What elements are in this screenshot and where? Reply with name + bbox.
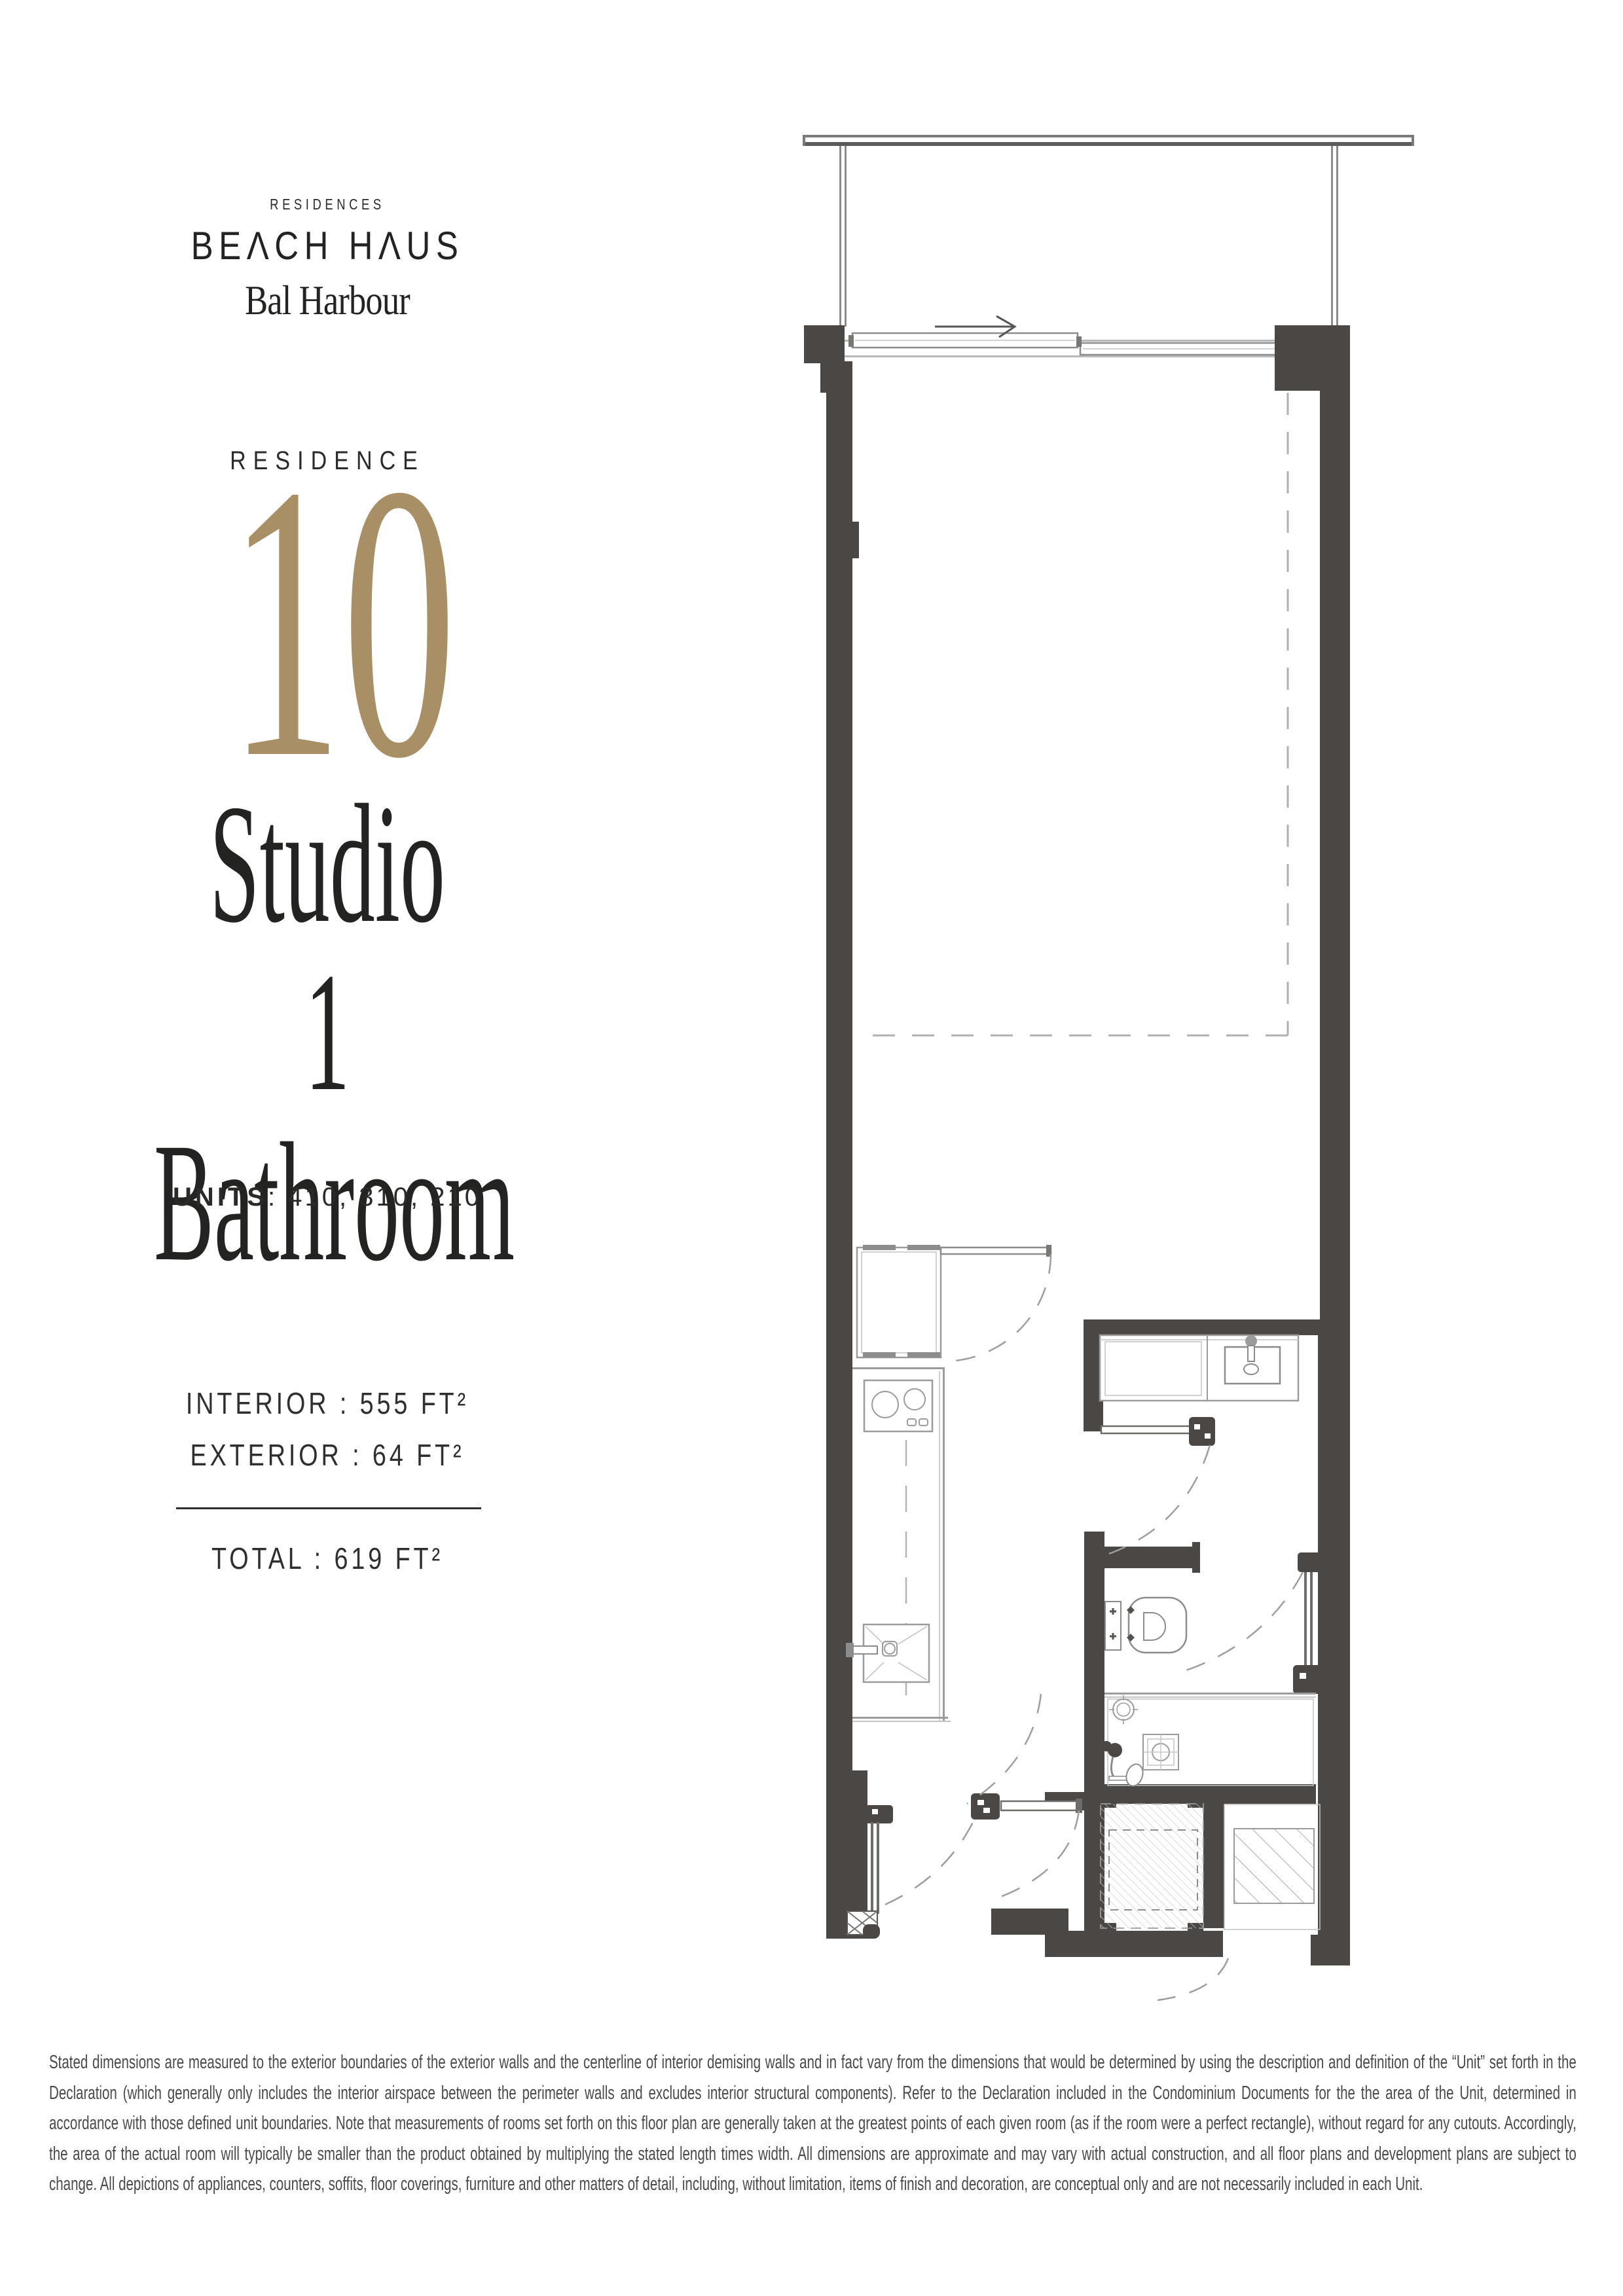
- door-swing-arc: [1182, 1572, 1303, 1672]
- door-swing-arc: [885, 1817, 976, 1905]
- ceiling-dashed-boundary: [856, 393, 1288, 1035]
- disclaimer-text: Stated dimensions are measured to the ex…: [49, 2047, 1577, 2200]
- toilet-icon: [1105, 1598, 1186, 1653]
- door-swing-arc: [1158, 1958, 1228, 2000]
- kitchen-sink-icon: [846, 1624, 929, 1682]
- shower-room: [1101, 1693, 1316, 1788]
- shower-drain-icon: [1143, 1734, 1178, 1770]
- washer-dryer-closet: [1101, 1804, 1203, 1928]
- bathroom-hall-door: [1101, 1417, 1215, 1554]
- door-swing-arc: [990, 1810, 1079, 1901]
- unit-walls: [804, 325, 1350, 1965]
- cooktop-icon: [864, 1380, 932, 1431]
- floor-plan: [0, 0, 1623, 2296]
- balcony-railing: [803, 135, 1414, 146]
- balcony-side-walls: [839, 146, 1338, 327]
- door-swing-arc: [943, 1254, 1051, 1361]
- entry-alcove: [1224, 1804, 1320, 1929]
- hatched-floor-marker: [1234, 1829, 1314, 1903]
- sliding-door: [845, 333, 1320, 357]
- pantry-door: [941, 1245, 1051, 1361]
- brochure-page: RESIDENCES BEΛCH HΛUS Bal Harbour RESIDE…: [0, 0, 1623, 2296]
- door-swing-arc: [1109, 1445, 1210, 1554]
- bathroom-door: [1182, 1552, 1326, 1694]
- door-swing-arc: [967, 1694, 1041, 1804]
- pantry-closet: [857, 1245, 941, 1357]
